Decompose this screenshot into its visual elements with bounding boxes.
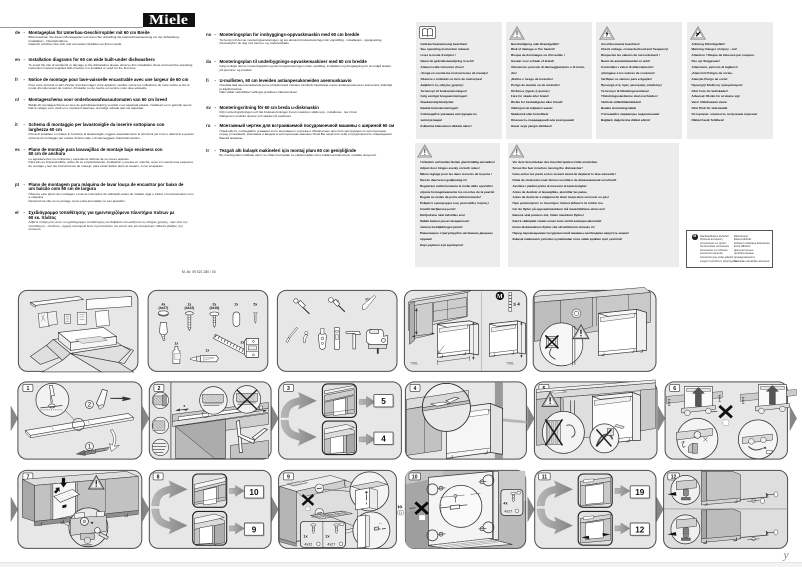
- svg-text:4x22: 4x22: [304, 542, 312, 546]
- svg-text:3: 3: [287, 386, 290, 392]
- svg-text:11: 11: [542, 475, 548, 481]
- svg-text:2x: 2x: [241, 340, 245, 344]
- svg-text:4: 4: [381, 435, 386, 444]
- svg-text:←: ←: [378, 520, 382, 525]
- svg-text:9: 9: [287, 475, 290, 481]
- svg-text:9: 9: [252, 525, 257, 534]
- svg-text:8: 8: [157, 475, 160, 481]
- svg-text:6: 6: [673, 386, 676, 392]
- svg-text:(4x16): (4x16): [209, 306, 219, 310]
- svg-text:4x27: 4x27: [327, 542, 335, 546]
- svg-text:4x27: 4x27: [504, 509, 512, 513]
- svg-text:12: 12: [635, 525, 645, 534]
- svg-text:≤ 4: ≤ 4: [513, 301, 520, 306]
- svg-text:M: M: [497, 294, 503, 300]
- svg-text:2: 2: [157, 386, 160, 392]
- svg-text:11: 11: [399, 511, 403, 515]
- svg-text:19: 19: [635, 488, 645, 497]
- svg-text:5: 5: [381, 397, 386, 406]
- svg-text:(4x22): (4x22): [184, 306, 194, 310]
- svg-text:1x: 1x: [175, 341, 179, 345]
- svg-text:1: 1: [26, 386, 29, 392]
- svg-text:10: 10: [412, 475, 418, 481]
- svg-text:*XXL: *XXL: [410, 361, 418, 365]
- svg-text:x: x: [183, 404, 185, 408]
- svg-text:5x: 5x: [254, 302, 258, 306]
- svg-text:1x: 1x: [206, 348, 210, 352]
- svg-text:2x: 2x: [235, 302, 239, 306]
- svg-text:*XXL: *XXL: [506, 361, 514, 365]
- svg-text:y: y: [782, 547, 789, 561]
- svg-text:10: 10: [249, 488, 259, 497]
- svg-text:(4x27): (4x27): [158, 306, 168, 310]
- svg-text:4: 4: [414, 386, 417, 392]
